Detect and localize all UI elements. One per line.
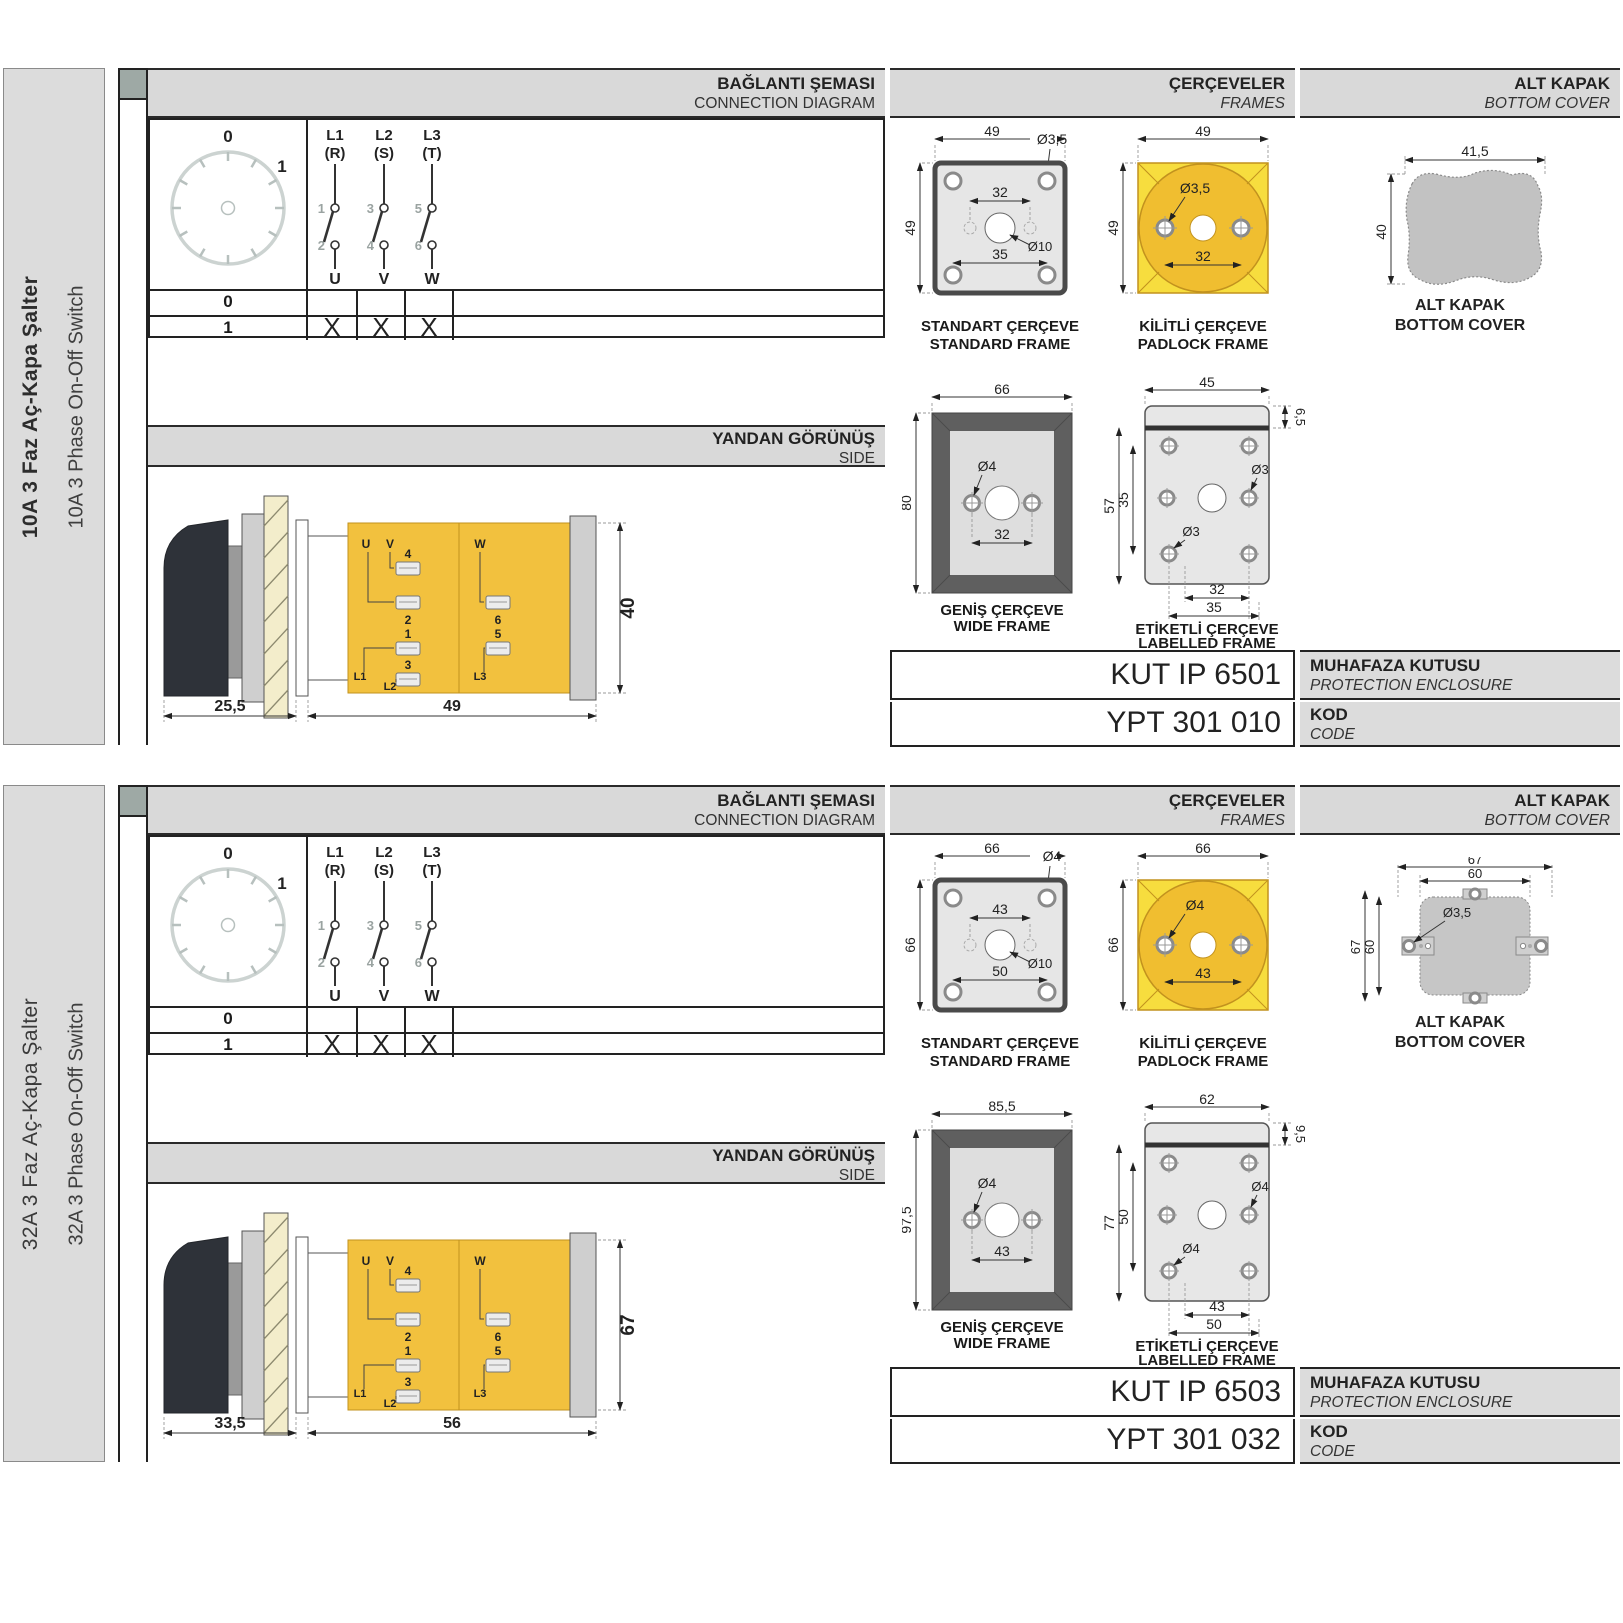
bottom-cover-caption: ALT KAPAK BOTTOM COVER	[1300, 296, 1620, 336]
labelled-frame-drawing: 45 6,5 57 35 Ø3 Ø3 32 35 ETİKETLİ ÇERÇEV…	[1097, 376, 1312, 648]
terminal-number-5: 5	[495, 1344, 502, 1358]
side-view-header-en: SIDE	[148, 1166, 875, 1185]
phase-output-label: U	[329, 988, 341, 1004]
frame-caption-en: LABELLED FRAME	[1138, 635, 1276, 648]
header-frames-tr: ÇERÇEVELER	[890, 73, 1285, 94]
contact-bottom-number: 6	[415, 955, 422, 970]
truth-table-row-0: 0	[150, 1006, 883, 1032]
dial-position-0: 0	[223, 844, 232, 863]
order-code: YPT 301 032	[1106, 1423, 1281, 1456]
frame-caption-en: PADLOCK FRAME	[1138, 336, 1269, 353]
dim-body-width: 49	[443, 698, 461, 715]
rotary-dial-cell: 0 1	[150, 837, 308, 1006]
order-code-label-cell: KOD CODE	[1300, 1419, 1620, 1464]
header-connection-diagram: BAĞLANTI ŞEMASI CONNECTION DIAGRAM	[148, 785, 885, 835]
dim-hole: Ø4	[1186, 897, 1205, 913]
frame-caption-tr: GENİŞ ÇERÇEVE	[940, 1319, 1063, 1336]
standard-frame-drawing: 49 Ø3,5 49 32 Ø10 35 STANDART ÇERÇEVE ST…	[900, 123, 1100, 363]
terminal-number-1: 1	[405, 627, 412, 641]
dim-cover-inner-width: 60	[1468, 866, 1482, 881]
dim-inner-height: 50	[1115, 1209, 1131, 1225]
dim-span: 32	[994, 526, 1010, 542]
dim-span-a: 32	[1209, 581, 1225, 597]
phase-switch-2: L2 (S) 3 4 V	[367, 127, 394, 287]
dim-hole-a: Ø3	[1182, 524, 1199, 539]
enclosure-code: KUT IP 6503	[1110, 1375, 1281, 1408]
dim-frame-width: 45	[1199, 376, 1215, 390]
header-connection-tr: BAĞLANTI ŞEMASI	[148, 73, 875, 94]
phase-line-label: L3	[423, 127, 441, 144]
enclosure-label-cell: MUHAFAZA KUTUSU PROTECTION ENCLOSURE	[1300, 1367, 1620, 1417]
order-code-label-tr: KOD	[1310, 704, 1620, 725]
cover-caption-en: BOTTOM COVER	[1300, 1033, 1620, 1053]
dim-frame-width: 66	[984, 840, 1000, 856]
enclosure-label-en: PROTECTION ENCLOSURE	[1310, 1393, 1620, 1412]
enclosure-code: KUT IP 6501	[1110, 658, 1281, 691]
header-frames-en: FRAMES	[890, 94, 1285, 113]
product-title-en: 10A 3 Phase On-Off Switch	[66, 285, 89, 528]
dim-frame-width: 62	[1199, 1093, 1215, 1107]
phase-name-label: (T)	[422, 145, 441, 162]
phase-output-label: W	[424, 271, 440, 287]
order-code-cell: YPT 301 010	[890, 702, 1295, 747]
contact-bottom-number: 2	[318, 955, 325, 970]
contact-top-number: 1	[318, 201, 325, 216]
bottom-cover-drawing: 41,5 40	[1335, 140, 1585, 290]
header-cover-en: BOTTOM COVER	[1300, 811, 1610, 830]
phase-switch-2: L2 (S) 3 4 V	[367, 844, 394, 1004]
terminal-number-4: 4	[405, 547, 412, 561]
terminal-label-l2: L2	[384, 681, 397, 693]
dim-hole: Ø4	[978, 458, 997, 474]
phase-output-label: V	[379, 988, 390, 1004]
dim-cover-hole: Ø3,5	[1443, 905, 1471, 920]
dim-center-hole: Ø10	[1028, 956, 1053, 971]
header-frames: ÇERÇEVELER FRAMES	[890, 68, 1295, 118]
dim-cover-inner-height: 60	[1362, 940, 1377, 954]
contact-top-number: 3	[367, 201, 374, 216]
dim-corner-hole: Ø4	[1043, 848, 1062, 864]
contact-top-number: 1	[318, 918, 325, 933]
header-cover-tr: ALT KAPAK	[1300, 790, 1610, 811]
phase-switch-1: L1 (R) 1 2 U	[318, 844, 346, 1004]
header-bottom-cover: ALT KAPAK BOTTOM COVER	[1300, 785, 1620, 835]
dim-frame-width: 66	[1195, 840, 1211, 856]
bottom-cover-drawing: 67 60 67 60 Ø3,5	[1335, 857, 1585, 1007]
order-code-label-en: CODE	[1310, 725, 1620, 744]
phase-line-label: L3	[423, 844, 441, 861]
enclosure-code-cell: KUT IP 6503	[890, 1367, 1295, 1417]
phase-name-label: (S)	[374, 145, 394, 162]
frame-caption-tr: GENİŞ ÇERÇEVE	[940, 602, 1063, 619]
enclosure-label-en: PROTECTION ENCLOSURE	[1310, 676, 1620, 695]
bottom-cover-shape	[1406, 170, 1541, 284]
truth-mark: X	[308, 1034, 358, 1057]
contact-top-number: 5	[415, 918, 422, 933]
header-connection-en: CONNECTION DIAGRAM	[148, 94, 875, 113]
switch-handle-shape	[164, 520, 228, 696]
truth-table-row-1: 1 X X X	[150, 1032, 883, 1057]
terminal-number-3: 3	[405, 658, 412, 672]
phase-name-label: (R)	[325, 145, 346, 162]
connection-diagram: 0 1 L1 (R) 1 2 U L2	[148, 835, 885, 1055]
contact-top-number: 5	[415, 201, 422, 216]
side-view-header-tr: YANDAN GÖRÜNÜŞ	[148, 428, 875, 449]
dim-frame-height: 80	[902, 495, 914, 511]
binder-spine	[118, 68, 148, 745]
phase-line-label: L1	[326, 127, 344, 144]
bottom-cover-shape	[1420, 897, 1530, 995]
dim-handle-depth: 33,5	[214, 1415, 245, 1432]
header-bottom-cover: ALT KAPAK BOTTOM COVER	[1300, 68, 1620, 118]
side-view-drawing: U V W 4 2 1 3 6 5 L1 L2 L3 33,5 56 67	[150, 1185, 750, 1450]
phase-contacts-drawing: L1 (R) 1 2 U L2 (S)	[308, 120, 883, 287]
dim-cover-width: 41,5	[1461, 143, 1488, 159]
contact-bottom-number: 2	[318, 238, 325, 253]
padlock-frame-drawing: 49 49 Ø3,5 32 KİLİTLİ ÇERÇEVE PADLOCK FR…	[1103, 123, 1303, 363]
enclosure-label-tr: MUHAFAZA KUTUSU	[1310, 1372, 1620, 1393]
dim-frame-width: 49	[1195, 123, 1211, 139]
truth-mark: X	[406, 317, 454, 340]
phase-output-label: U	[329, 271, 341, 287]
product-sidebar: 32A 3 Faz Aç-Kapa Şalter 32A 3 Phase On-…	[3, 785, 105, 1462]
truth-mark: X	[358, 1034, 406, 1057]
dim-body-height: 67	[618, 1314, 639, 1335]
truth-table-row-1: 1 X X X	[150, 315, 883, 340]
dim-hole-b: Ø3	[1251, 462, 1268, 477]
terminal-number-6: 6	[495, 1330, 502, 1344]
connection-diagram: 0 1 L1 (R) 1 2 U L2	[148, 118, 885, 338]
order-code-label-tr: KOD	[1310, 1421, 1620, 1442]
product-title-tr: 32A 3 Faz Aç-Kapa Şalter	[19, 997, 43, 1249]
dial-position-0: 0	[223, 127, 232, 146]
frame-caption-en: WIDE FRAME	[954, 618, 1051, 633]
spine-tab	[120, 787, 146, 817]
dim-inner-height: 35	[1115, 492, 1131, 508]
dim-span: 43	[1195, 965, 1211, 981]
terminal-label-u: U	[362, 537, 371, 551]
product-title-tr: 10A 3 Faz Aç-Kapa Şalter	[19, 275, 43, 538]
header-connection-diagram: BAĞLANTI ŞEMASI CONNECTION DIAGRAM	[148, 68, 885, 118]
padlock-frame-drawing: 66 66 Ø4 43 KİLİTLİ ÇERÇEVE PADLOCK FRAM…	[1103, 840, 1303, 1080]
order-code-label-cell: KOD CODE	[1300, 702, 1620, 747]
contact-bottom-number: 4	[367, 955, 375, 970]
phase-switch-3: L3 (T) 5 6 W	[415, 127, 442, 287]
dim-body-height: 40	[618, 597, 639, 618]
rotary-dial-drawing: 0 1	[150, 837, 306, 1004]
dim-frame-height: 66	[902, 937, 918, 953]
phase-line-label: L2	[375, 127, 393, 144]
dim-hole-a: Ø4	[1182, 1241, 1199, 1256]
dim-top-span: 32	[992, 184, 1008, 200]
header-frames-en: FRAMES	[890, 811, 1285, 830]
truth-row-label: 1	[150, 1034, 308, 1057]
wide-frame-drawing: 85,5 97,5 Ø4 43 GENİŞ ÇERÇEVE WIDE FRAME	[902, 1100, 1102, 1350]
truth-mark: X	[358, 317, 406, 340]
frame-caption-en: WIDE FRAME	[954, 1335, 1051, 1350]
dim-body-width: 56	[443, 1415, 461, 1432]
side-view-header-en: SIDE	[148, 449, 875, 468]
phase-contacts-cell: L1 (R) 1 2 U L2 (S)	[308, 837, 883, 1006]
product-sidebar: 10A 3 Faz Aç-Kapa Şalter 10A 3 Phase On-…	[3, 68, 105, 745]
dim-span-a: 43	[1209, 1298, 1225, 1314]
phase-contacts-cell: L1 (R) 1 2 U L2 (S)	[308, 120, 883, 289]
terminal-number-3: 3	[405, 1375, 412, 1389]
truth-mark: X	[406, 1034, 454, 1057]
terminal-number-2: 2	[405, 613, 412, 627]
dim-corner-hole: Ø3,5	[1037, 131, 1068, 147]
dim-frame-height: 97,5	[902, 1206, 914, 1233]
dim-frame-width: 85,5	[988, 1100, 1015, 1114]
switch-handle-shape	[164, 1237, 228, 1413]
dim-top-strip: 9,5	[1293, 1125, 1308, 1143]
terminal-label-l1: L1	[354, 1388, 367, 1400]
truth-row-label: 0	[150, 291, 308, 315]
terminal-label-w: W	[474, 1254, 486, 1268]
side-view-drawing: U V W 4 2 1 3 6 5 L1 L2 L3 25,5 49 40	[150, 468, 750, 733]
truth-table-row-0: 0	[150, 289, 883, 315]
order-code-cell: YPT 301 032	[890, 1419, 1295, 1464]
dim-frame-height: 49	[902, 220, 918, 236]
frame-caption-tr: STANDART ÇERÇEVE	[921, 1035, 1079, 1052]
catalog-page: 10A 3 Faz Aç-Kapa Şalter 10A 3 Phase On-…	[0, 0, 1623, 1623]
order-code-label-en: CODE	[1310, 1442, 1620, 1461]
dim-cover-outer-height: 67	[1348, 940, 1363, 954]
phase-output-label: W	[424, 988, 440, 1004]
enclosure-code-cell: KUT IP 6501	[890, 650, 1295, 700]
rotary-dial-drawing: 0 1	[150, 120, 306, 287]
cover-caption-tr: ALT KAPAK	[1300, 1013, 1620, 1033]
truth-mark: X	[308, 317, 358, 340]
spine-tab	[120, 70, 146, 100]
header-frames: ÇERÇEVELER FRAMES	[890, 785, 1295, 835]
header-frames-tr: ÇERÇEVELER	[890, 790, 1285, 811]
terminal-number-1: 1	[405, 1344, 412, 1358]
cover-caption-en: BOTTOM COVER	[1300, 316, 1620, 336]
labelled-frame-drawing: 62 9,5 77 50 Ø4 Ø4 43 50 ETİKETLİ ÇERÇEV…	[1097, 1093, 1312, 1365]
dim-frame-width: 49	[984, 123, 1000, 139]
dim-top-strip: 6,5	[1293, 408, 1308, 426]
terminal-number-2: 2	[405, 1330, 412, 1344]
dim-hole: Ø4	[978, 1175, 997, 1191]
side-view-header: YANDAN GÖRÜNÜŞ SIDE	[148, 1142, 885, 1184]
frame-caption-tr: KİLİTLİ ÇERÇEVE	[1139, 1035, 1267, 1052]
contact-bottom-number: 6	[415, 238, 422, 253]
side-view-header-tr: YANDAN GÖRÜNÜŞ	[148, 1145, 875, 1166]
enclosure-label-tr: MUHAFAZA KUTUSU	[1310, 655, 1620, 676]
frame-caption-en: LABELLED FRAME	[1138, 1352, 1276, 1365]
terminal-label-l1: L1	[354, 671, 367, 683]
contact-top-number: 3	[367, 918, 374, 933]
phase-name-label: (R)	[325, 862, 346, 879]
dim-bottom-span: 50	[992, 963, 1008, 979]
header-connection-tr: BAĞLANTI ŞEMASI	[148, 790, 875, 811]
terminal-label-l3: L3	[474, 671, 487, 683]
product-title-en: 32A 3 Phase On-Off Switch	[66, 1002, 89, 1245]
dim-bottom-span: 35	[992, 246, 1008, 262]
rotary-dial-cell: 0 1	[150, 120, 308, 289]
dim-hole: Ø3,5	[1180, 180, 1211, 196]
phase-name-label: (S)	[374, 862, 394, 879]
contact-bottom-number: 4	[367, 238, 375, 253]
cover-caption-tr: ALT KAPAK	[1300, 296, 1620, 316]
order-code: YPT 301 010	[1106, 706, 1281, 739]
dim-span: 32	[1195, 248, 1211, 264]
dim-handle-depth: 25,5	[214, 698, 245, 715]
truth-row-label: 1	[150, 317, 308, 340]
terminal-label-l2: L2	[384, 1398, 397, 1410]
phase-switch-3: L3 (T) 5 6 W	[415, 844, 442, 1004]
side-view-header: YANDAN GÖRÜNÜŞ SIDE	[148, 425, 885, 467]
product-panel: 10A 3 Faz Aç-Kapa Şalter 10A 3 Phase On-…	[0, 68, 1623, 745]
phase-contacts-drawing: L1 (R) 1 2 U L2 (S)	[308, 837, 883, 1004]
header-cover-tr: ALT KAPAK	[1300, 73, 1610, 94]
mounting-plate-hatched	[264, 496, 288, 718]
frame-caption-en: PADLOCK FRAME	[1138, 1053, 1269, 1070]
frame-caption-en: STANDARD FRAME	[930, 1053, 1071, 1070]
enclosure-label-cell: MUHAFAZA KUTUSU PROTECTION ENCLOSURE	[1300, 650, 1620, 700]
dim-center-hole: Ø10	[1028, 239, 1053, 254]
truth-row-label: 0	[150, 1008, 308, 1032]
terminal-label-v: V	[386, 537, 394, 551]
dim-frame-height: 66	[1105, 937, 1121, 953]
dial-position-1: 1	[277, 874, 286, 893]
phase-line-label: L1	[326, 844, 344, 861]
dial-position-1: 1	[277, 157, 286, 176]
frame-caption-en: STANDARD FRAME	[930, 336, 1071, 353]
product-panel: 32A 3 Faz Aç-Kapa Şalter 32A 3 Phase On-…	[0, 785, 1623, 1462]
terminal-number-5: 5	[495, 627, 502, 641]
phase-line-label: L2	[375, 844, 393, 861]
dim-span-b: 50	[1206, 1316, 1222, 1332]
phase-switch-1: L1 (R) 1 2 U	[318, 127, 346, 287]
phase-name-label: (T)	[422, 862, 441, 879]
standard-frame-drawing: 66 Ø4 66 43 Ø10 50 STANDART ÇERÇEVE STAN…	[900, 840, 1100, 1080]
dim-top-span: 43	[992, 901, 1008, 917]
terminal-number-4: 4	[405, 1264, 412, 1278]
dim-frame-height: 49	[1105, 220, 1121, 236]
terminal-label-l3: L3	[474, 1388, 487, 1400]
terminal-label-w: W	[474, 537, 486, 551]
frame-caption-tr: STANDART ÇERÇEVE	[921, 318, 1079, 335]
bottom-cover-caption: ALT KAPAK BOTTOM COVER	[1300, 1013, 1620, 1053]
terminal-number-6: 6	[495, 613, 502, 627]
mounting-plate-hatched	[264, 1213, 288, 1435]
dim-frame-width: 66	[994, 383, 1010, 397]
header-cover-en: BOTTOM COVER	[1300, 94, 1610, 113]
wide-frame-drawing: 66 80 Ø4 32 GENİŞ ÇERÇEVE WIDE FRAME	[902, 383, 1102, 633]
dim-hole-b: Ø4	[1251, 1179, 1268, 1194]
frame-caption-tr: KİLİTLİ ÇERÇEVE	[1139, 318, 1267, 335]
dim-span-b: 35	[1206, 599, 1222, 615]
header-connection-en: CONNECTION DIAGRAM	[148, 811, 875, 830]
dim-span: 43	[994, 1243, 1010, 1259]
dim-cover-height: 40	[1373, 224, 1389, 240]
terminal-label-v: V	[386, 1254, 394, 1268]
terminal-label-u: U	[362, 1254, 371, 1268]
phase-output-label: V	[379, 271, 390, 287]
binder-spine	[118, 785, 148, 1462]
